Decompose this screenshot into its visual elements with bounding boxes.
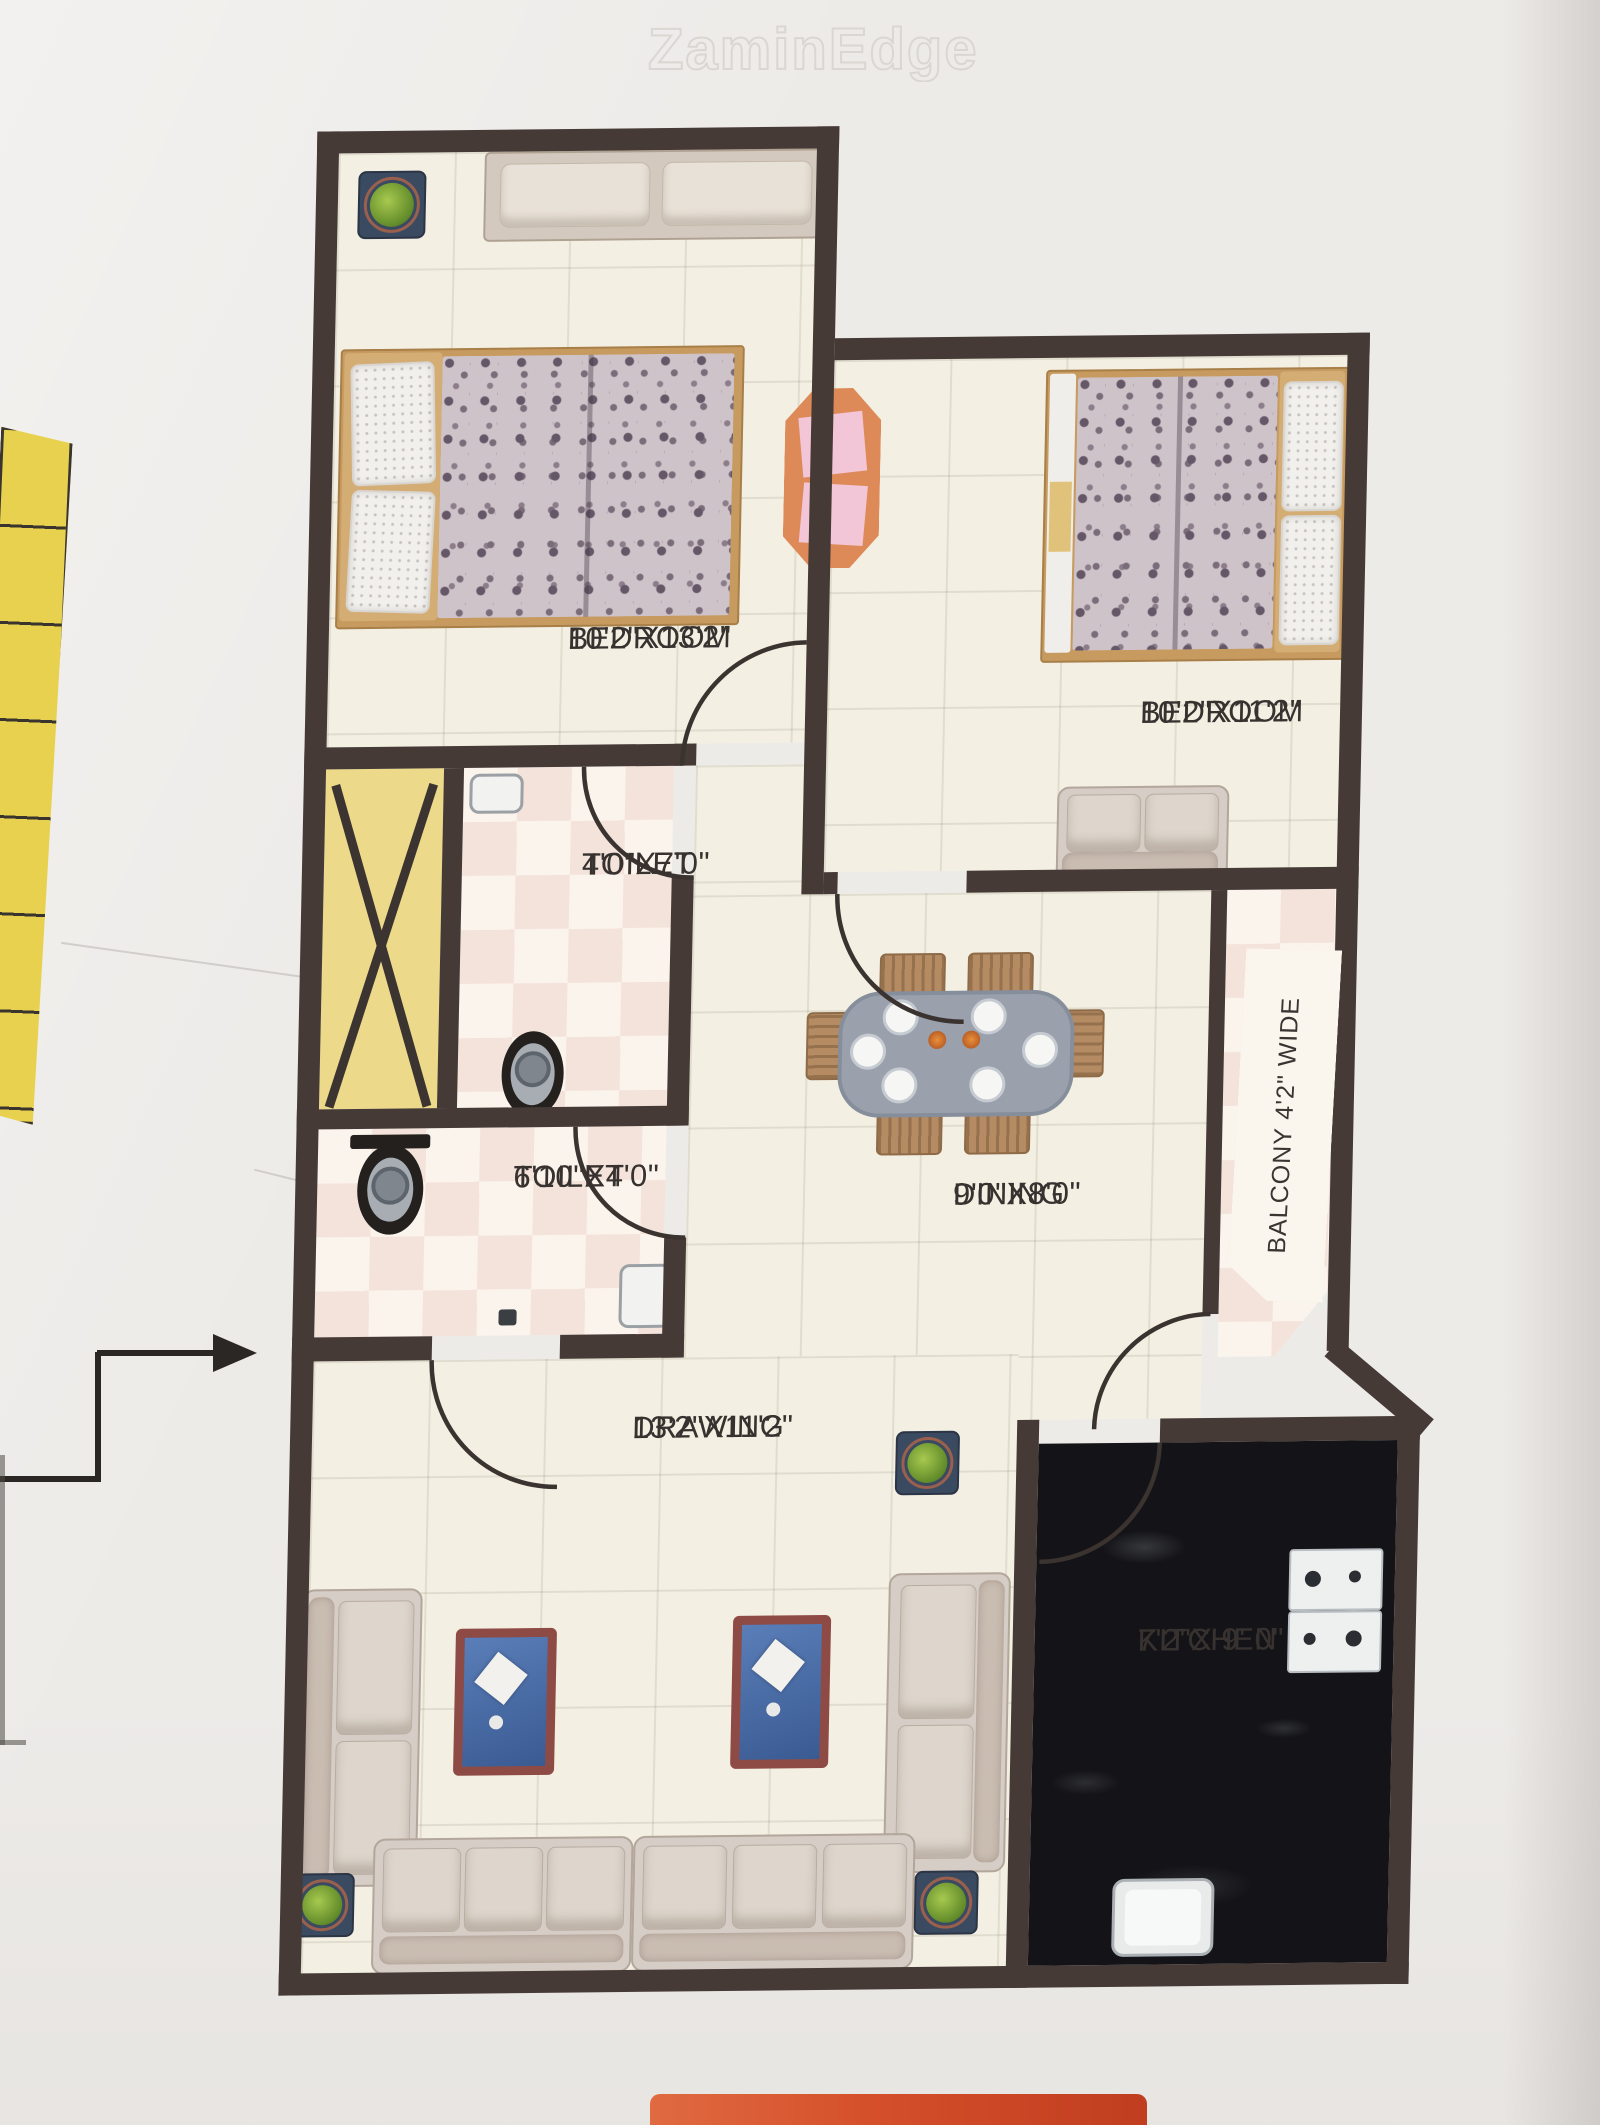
room-dining-floor	[682, 890, 1211, 1423]
sofa-cushion	[898, 1584, 977, 1719]
sofa-cushion	[1144, 793, 1219, 852]
bed-pillow	[345, 490, 436, 614]
sofa-cushion	[382, 1848, 462, 1933]
wall-segment	[1160, 1416, 1421, 1443]
sofa-back	[639, 1931, 906, 1962]
sofa-cushion	[1066, 794, 1141, 853]
double-bed-1	[335, 345, 745, 629]
sofa-back	[379, 1934, 624, 1965]
wall-segment	[297, 1106, 689, 1130]
dresser-pad	[661, 160, 812, 226]
magazine	[751, 1639, 804, 1692]
room-toilet-1-floor	[457, 766, 674, 1108]
entry-path-line	[97, 1350, 215, 1356]
cup	[489, 1715, 503, 1729]
entry-path-line	[0, 1476, 99, 1482]
blanket-fold	[583, 355, 593, 617]
floor-plan: BEDROOM 10'2"X13'2" BEDROOM 10'2"X11'2" …	[258, 110, 1417, 1997]
room-dims: 13'2"X11'2"	[632, 1406, 794, 1447]
blanket-fold	[1172, 377, 1183, 650]
wall-segment	[823, 872, 837, 894]
sofa-cushion	[336, 1600, 415, 1735]
sofa-cushion	[642, 1845, 728, 1930]
watermark: ZaminEdge	[648, 16, 979, 83]
room-dims: 6'10"X4'0"	[513, 1156, 660, 1197]
room-dims: 9'0"X8'0"	[953, 1173, 1082, 1214]
wall-segment	[304, 744, 682, 770]
gas-stove	[1287, 1548, 1380, 1673]
bed-blanket	[437, 353, 734, 618]
wall-segment	[292, 1336, 433, 1361]
wash-basin	[469, 773, 524, 814]
photo-background: ZaminEdge	[0, 0, 1600, 2125]
tap-fitting	[498, 1309, 516, 1325]
cup	[766, 1702, 780, 1716]
bed-pillow	[1281, 381, 1344, 512]
drawing-sofa-right	[883, 1572, 1011, 1873]
wall-stub	[0, 1455, 5, 1745]
magazine	[474, 1652, 527, 1705]
wall-stub	[0, 1740, 26, 1745]
wall-segment	[674, 744, 696, 766]
room-dims: 4'0"X7'0"	[582, 843, 711, 884]
coffee-table	[730, 1615, 831, 1769]
bed-pillow	[1278, 515, 1341, 646]
sofa-cushion	[732, 1844, 818, 1929]
coffee-table	[453, 1628, 557, 1776]
hall-nook-floor	[693, 764, 804, 895]
sofa-cushion	[464, 1847, 544, 1932]
bed-blanket	[1072, 376, 1278, 651]
room-dims: 10'2"X11'2"	[1140, 691, 1302, 732]
bed-pillow	[350, 361, 436, 487]
sink-basin	[1124, 1889, 1201, 1946]
potted-plant	[357, 171, 426, 240]
bedroom1-dresser	[483, 148, 829, 242]
room-dims: 10'2"X13'2"	[567, 617, 731, 658]
bed-sheet-strip	[1048, 482, 1071, 552]
sofa-cushion	[546, 1846, 626, 1931]
potted-plant	[895, 1431, 960, 1496]
staircase-partial	[0, 427, 73, 1125]
drawing-sofa-bottom-1	[371, 1836, 634, 1975]
entry-path-line	[95, 1352, 101, 1482]
room-dims: 7'2"X 9' 0"	[1137, 1619, 1284, 1660]
sofa-back	[973, 1580, 1005, 1862]
bottom-banner-partial	[650, 2094, 1147, 2125]
wall-segment	[560, 1334, 685, 1359]
drawing-sofa-bottom-2	[631, 1833, 916, 1972]
balcony-label: BALCONY 4'2" WIDE	[1263, 997, 1306, 1254]
sofa-cushion	[822, 1843, 908, 1928]
kitchen-sink	[1111, 1878, 1215, 1957]
double-bed-2	[1040, 367, 1351, 663]
dresser-pad	[499, 162, 650, 228]
duct-shaft	[319, 768, 444, 1109]
potted-plant	[914, 1870, 979, 1935]
entry-arrow-icon	[213, 1334, 257, 1372]
balcony-tag: BALCONY 4'2" WIDE	[1227, 948, 1343, 1302]
wall-segment	[966, 867, 1358, 893]
